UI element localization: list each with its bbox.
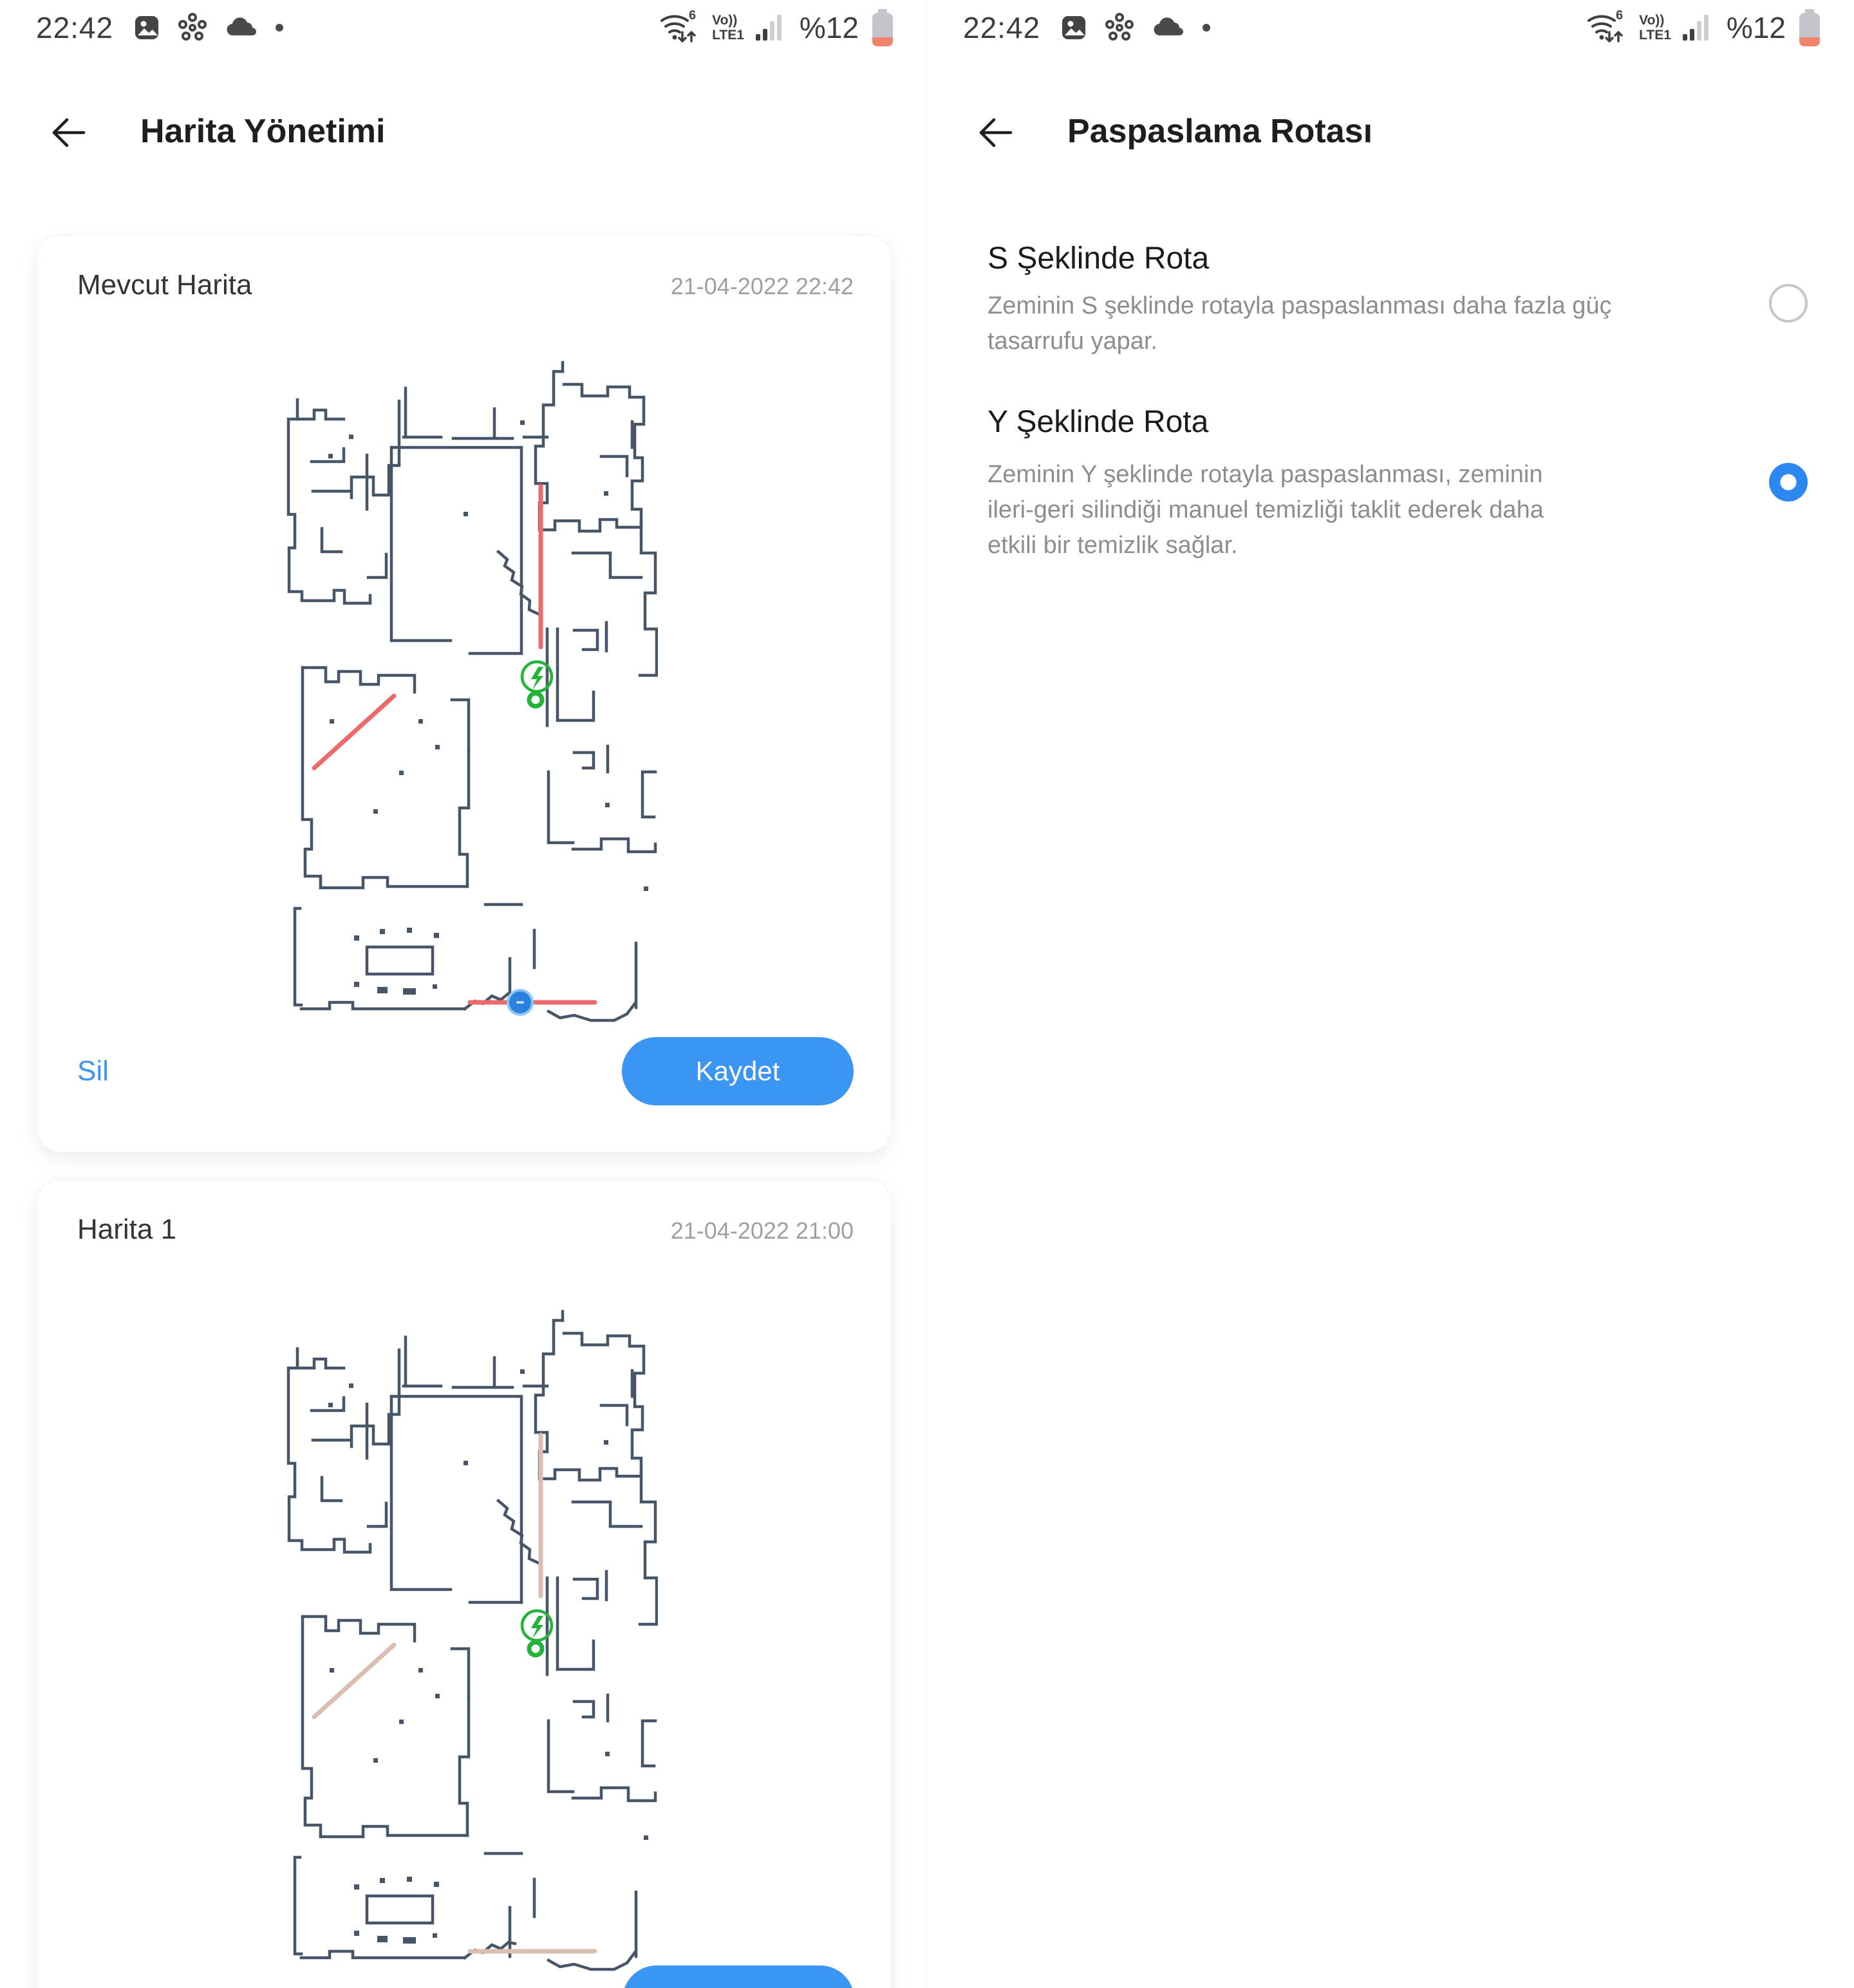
mopping-route-screen: 22:42 — [927, 0, 1854, 1988]
smartthings-notification-icon — [1105, 13, 1134, 42]
card-header: Harita 1 21-04-2022 21:00 — [77, 1214, 854, 1246]
map-name: Harita 1 — [77, 1214, 176, 1246]
route-option-title: Y Şeklinde Rota — [988, 403, 1808, 442]
card-header: Mevcut Harita 21-04-2022 22:42 — [77, 269, 854, 301]
delete-map-link[interactable]: Sil — [77, 1055, 109, 1087]
robot-marker — [508, 990, 532, 1015]
route-option-description: Zeminin S şeklinde rotayla paspaslanması… — [988, 288, 1750, 359]
map-management-screen: 22:42 — [0, 0, 927, 1988]
map-timestamp: 21-04-2022 22:42 — [671, 273, 854, 300]
battery-icon — [870, 8, 895, 48]
clock: 22:42 — [36, 10, 113, 45]
wifi-icon: 6 — [659, 10, 700, 45]
page-title: Paspaslama Rotası — [1067, 112, 1372, 151]
current-map-card: Mevcut Harita 21-04-2022 22:42 Sil Kayde… — [37, 235, 892, 1152]
more-notifications-dot-icon — [274, 23, 285, 33]
notification-icons — [133, 13, 285, 42]
app-bar: Paspaslama Rotası — [927, 108, 1854, 160]
card-actions: Sil Kaydet — [77, 1037, 854, 1105]
cloud-notification-icon — [1151, 15, 1184, 41]
more-notifications-dot-icon — [1201, 23, 1212, 33]
wifi-icon: 6 — [1586, 10, 1627, 45]
signal-strength-icon — [756, 12, 784, 43]
network-type-label: Vo)) LTE1 — [712, 13, 744, 42]
smartthings-notification-icon — [178, 13, 207, 42]
radio-selected[interactable] — [1769, 463, 1808, 502]
notification-icons — [1060, 13, 1212, 42]
route-option-title: S Şeklinde Rota — [988, 239, 1808, 278]
floorplan-map-preview[interactable] — [272, 1309, 658, 1985]
status-bar: 22:42 — [0, 6, 927, 49]
battery-percent-label: %12 — [1727, 10, 1786, 45]
saved-map-card: Harita 1 21-04-2022 21:00 — [37, 1179, 892, 1988]
clock: 22:42 — [963, 10, 1040, 45]
svg-text:6: 6 — [689, 10, 696, 23]
gallery-notification-icon — [133, 14, 161, 42]
save-map-button-partial[interactable] — [623, 1965, 854, 1988]
signal-strength-icon — [1683, 12, 1711, 43]
battery-percent-label: %12 — [800, 10, 859, 45]
route-option-description: Zeminin Y şeklinde rotayla paspaslanması… — [988, 457, 1750, 563]
status-bar: 22:42 — [927, 6, 1854, 49]
system-status-icons: 6 Vo)) LTE1 %12 — [659, 8, 895, 48]
map-name: Mevcut Harita — [77, 269, 252, 301]
route-option-y[interactable]: Y Şeklinde Rota Zeminin Y şeklinde rotay… — [988, 403, 1808, 563]
app-bar: Harita Yönetimi — [0, 108, 927, 160]
save-map-button[interactable]: Kaydet — [622, 1037, 854, 1105]
gallery-notification-icon — [1060, 14, 1088, 42]
floorplan-map-preview[interactable] — [272, 360, 658, 1036]
battery-icon — [1797, 8, 1822, 48]
network-type-label: Vo)) LTE1 — [1639, 13, 1671, 42]
svg-text:6: 6 — [1616, 10, 1623, 23]
back-arrow-icon[interactable] — [48, 112, 89, 153]
back-arrow-icon[interactable] — [975, 112, 1016, 153]
screenshot-root: 22:42 — [0, 0, 1854, 1988]
cloud-notification-icon — [224, 15, 257, 41]
system-status-icons: 6 Vo)) LTE1 %12 — [1586, 8, 1822, 48]
map-timestamp: 21-04-2022 21:00 — [671, 1217, 854, 1244]
route-option-s[interactable]: S Şeklinde Rota Zeminin S şeklinde rotay… — [988, 239, 1808, 359]
page-title: Harita Yönetimi — [140, 112, 385, 151]
radio-unselected[interactable] — [1769, 284, 1808, 323]
